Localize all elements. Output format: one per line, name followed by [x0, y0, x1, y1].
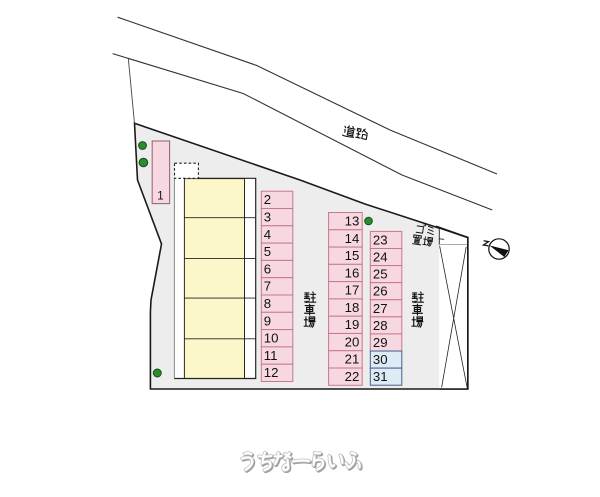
svg-text:9: 9	[264, 313, 271, 328]
svg-text:14: 14	[345, 231, 360, 246]
svg-text:4: 4	[264, 227, 271, 242]
svg-text:26: 26	[373, 284, 388, 299]
svg-text:15: 15	[345, 248, 360, 263]
svg-text:17: 17	[345, 283, 360, 298]
svg-text:11: 11	[264, 348, 278, 363]
svg-text:29: 29	[373, 335, 388, 350]
svg-text:31: 31	[373, 369, 388, 384]
svg-text:1: 1	[157, 190, 163, 202]
svg-text:13: 13	[345, 214, 360, 229]
svg-text:10: 10	[264, 331, 279, 346]
svg-text:27: 27	[373, 301, 388, 316]
svg-text:16: 16	[345, 265, 360, 280]
svg-text:12: 12	[264, 365, 279, 380]
svg-text:20: 20	[345, 334, 360, 349]
svg-text:5: 5	[264, 244, 271, 259]
svg-text:23: 23	[373, 232, 388, 247]
svg-text:6: 6	[264, 261, 271, 276]
svg-text:7: 7	[264, 279, 271, 294]
svg-text:22: 22	[345, 369, 360, 384]
svg-text:8: 8	[264, 296, 271, 311]
svg-text:21: 21	[345, 352, 360, 367]
svg-text:24: 24	[373, 249, 388, 264]
svg-text:3: 3	[264, 210, 271, 225]
svg-text:2: 2	[264, 192, 271, 207]
svg-text:18: 18	[345, 300, 360, 315]
svg-text:19: 19	[345, 317, 360, 332]
svg-text:28: 28	[373, 318, 388, 333]
svg-text:25: 25	[373, 267, 388, 282]
svg-text:30: 30	[373, 352, 388, 367]
